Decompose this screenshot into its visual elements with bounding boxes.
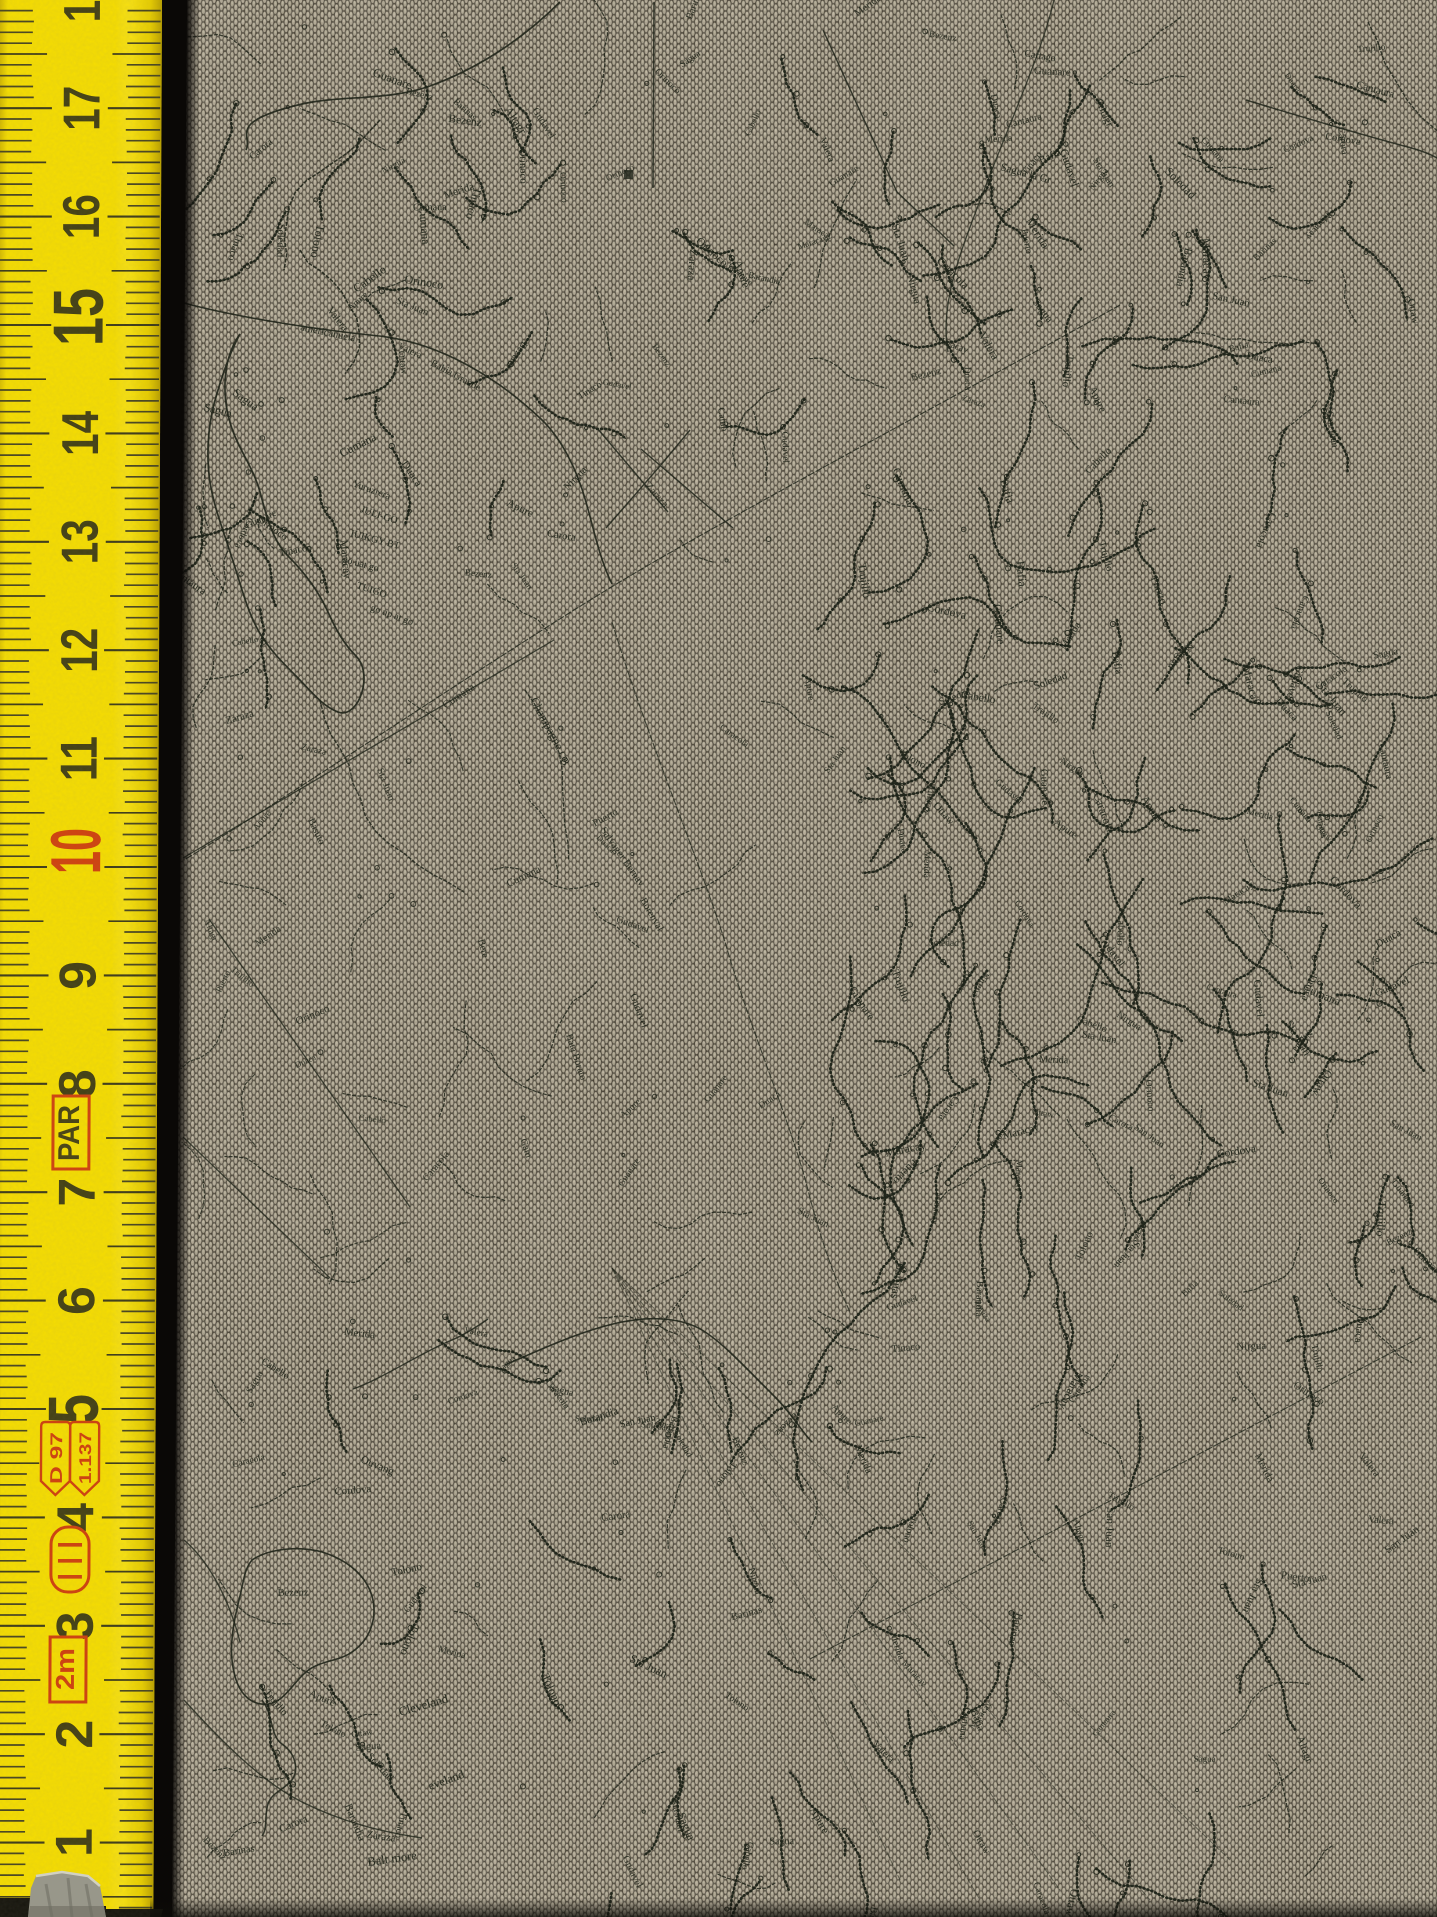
svg-text:Guanare: Guanare [1034,65,1072,79]
svg-text:Guanare: Guanare [1038,769,1051,806]
svg-text:Merida: Merida [984,133,1013,146]
svg-text:Barandia: Barandia [973,1281,985,1318]
svg-text:Orinoco: Orinoco [557,172,569,204]
svg-text:Maracay: Maracay [1013,1160,1024,1193]
svg-text:Soledad: Soledad [928,939,959,949]
svg-text:Duaca: Duaca [963,367,973,391]
svg-text:Maracay: Maracay [1199,238,1214,280]
svg-text:Sagua: Sagua [1193,1754,1215,1764]
svg-text:Bafia: Bafia [1013,560,1029,588]
svg-text:San Juan: San Juan [1103,1507,1117,1548]
svg-text:Sagua: Sagua [769,1836,794,1847]
svg-text:Gudavel: Gudavel [779,431,790,463]
svg-text:Bezenz: Bezenz [277,1587,308,1598]
svg-text:Merida: Merida [1039,1054,1069,1066]
svg-text:Cabello: Cabello [1114,913,1126,945]
svg-text:Merida: Merida [921,851,932,879]
svg-text:Trujillo: Trujillo [1373,1201,1389,1237]
svg-text:Nirgua: Nirgua [1236,1340,1266,1353]
